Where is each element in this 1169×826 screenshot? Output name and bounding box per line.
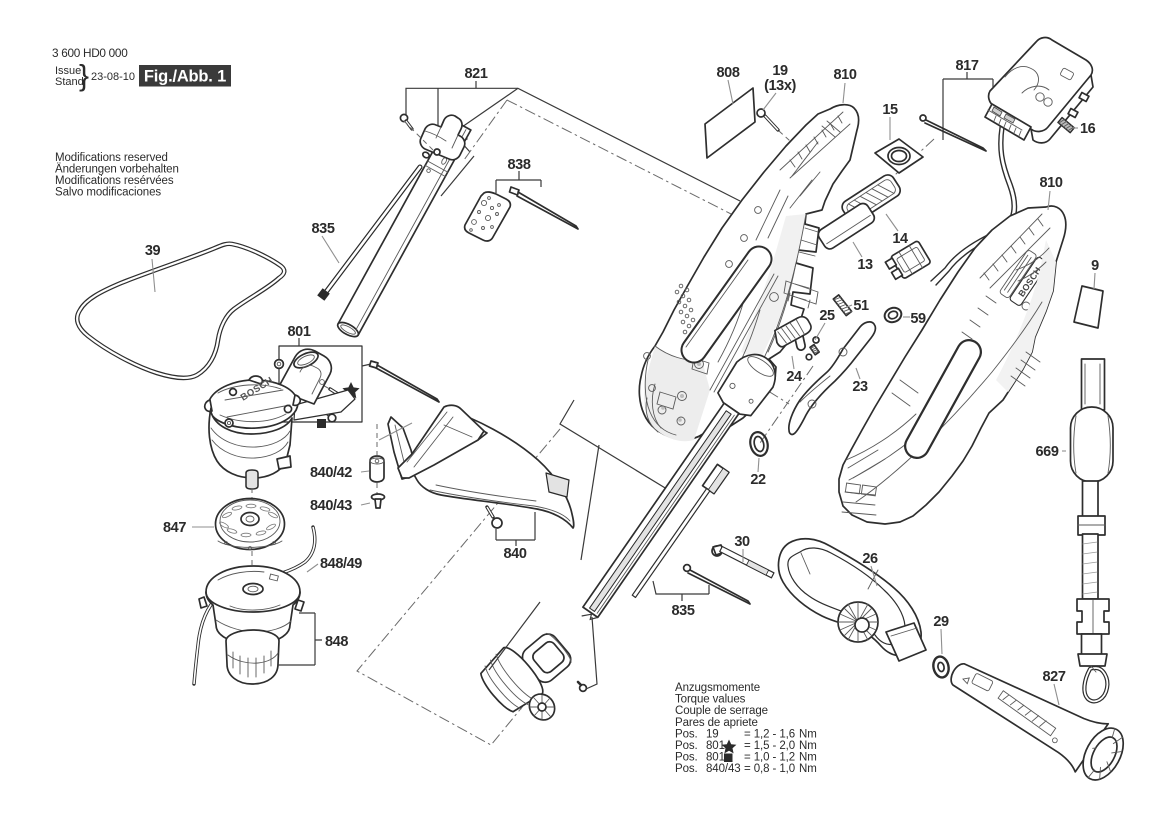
- svg-text:16: 16: [1080, 121, 1096, 137]
- svg-text:840/42: 840/42: [310, 465, 352, 481]
- svg-text:= 0,8 - 1,0: = 0,8 - 1,0: [744, 763, 795, 775]
- svg-text:840/43: 840/43: [706, 763, 741, 775]
- svg-text:30: 30: [734, 534, 750, 550]
- svg-text:Couple de serrage: Couple de serrage: [675, 705, 768, 717]
- svg-text:13: 13: [857, 257, 873, 273]
- svg-text:= 1,5 - 2,0: = 1,5 - 2,0: [744, 740, 795, 752]
- svg-text:848: 848: [325, 634, 348, 650]
- svg-text:22: 22: [750, 472, 766, 488]
- svg-text:810: 810: [1040, 175, 1063, 191]
- svg-text:808: 808: [717, 65, 740, 81]
- svg-text:Änderungen vorbehalten: Änderungen vorbehalten: [55, 164, 179, 176]
- svg-text:801: 801: [706, 752, 725, 764]
- svg-text:26: 26: [862, 551, 878, 567]
- svg-text:Pos.: Pos.: [675, 752, 698, 764]
- svg-text:}: }: [79, 60, 89, 93]
- svg-text:817: 817: [956, 58, 979, 74]
- svg-text:810: 810: [834, 67, 857, 83]
- svg-text:840/43: 840/43: [310, 498, 352, 514]
- svg-text:Pos.: Pos.: [675, 740, 698, 752]
- svg-text:669: 669: [1036, 444, 1059, 460]
- svg-text:827: 827: [1043, 669, 1066, 685]
- svg-text:59: 59: [910, 311, 926, 327]
- svg-text:Anzugsmomente: Anzugsmomente: [675, 682, 760, 694]
- svg-text:Nm: Nm: [799, 740, 817, 752]
- svg-text:801: 801: [288, 324, 311, 340]
- svg-text:Pos.: Pos.: [675, 763, 698, 775]
- svg-text:39: 39: [145, 243, 161, 259]
- svg-text:25: 25: [819, 308, 835, 324]
- svg-text:Pares de apriete: Pares de apriete: [675, 717, 758, 729]
- svg-text:(13x): (13x): [764, 78, 796, 94]
- svg-text:23: 23: [852, 379, 868, 395]
- svg-text:Torque values: Torque values: [675, 694, 746, 706]
- svg-text:848/49: 848/49: [320, 556, 362, 572]
- svg-text:Nm: Nm: [799, 752, 817, 764]
- svg-text:Nm: Nm: [799, 728, 817, 740]
- svg-text:24: 24: [786, 369, 802, 385]
- svg-text:Pos.: Pos.: [675, 728, 698, 740]
- svg-text:821: 821: [465, 66, 488, 82]
- svg-text:Modifications resérvées: Modifications resérvées: [55, 175, 174, 187]
- svg-text:Fig./Abb. 1: Fig./Abb. 1: [144, 68, 226, 86]
- svg-text:Modifications reserved: Modifications reserved: [55, 152, 168, 164]
- svg-text:835: 835: [312, 221, 335, 237]
- svg-text:801: 801: [706, 740, 725, 752]
- svg-text:835: 835: [672, 603, 695, 619]
- svg-text:51: 51: [853, 298, 869, 314]
- svg-text:23-08-10: 23-08-10: [91, 71, 135, 83]
- svg-text:9: 9: [1091, 258, 1099, 274]
- svg-text:847: 847: [163, 520, 186, 536]
- svg-text:3 600 HD0 000: 3 600 HD0 000: [52, 46, 128, 60]
- svg-text:= 1,2 - 1,6: = 1,2 - 1,6: [744, 728, 795, 740]
- svg-text:29: 29: [933, 614, 949, 630]
- svg-text:Salvo modificaciones: Salvo modificaciones: [55, 187, 161, 199]
- svg-text:840: 840: [504, 546, 527, 562]
- svg-text:14: 14: [892, 231, 908, 247]
- svg-text:Nm: Nm: [799, 763, 817, 775]
- svg-text:19: 19: [772, 63, 788, 79]
- svg-text:15: 15: [882, 102, 898, 118]
- svg-text:19: 19: [706, 728, 719, 740]
- svg-text:= 1,0 - 1,2: = 1,0 - 1,2: [744, 752, 795, 764]
- svg-text:838: 838: [508, 157, 531, 173]
